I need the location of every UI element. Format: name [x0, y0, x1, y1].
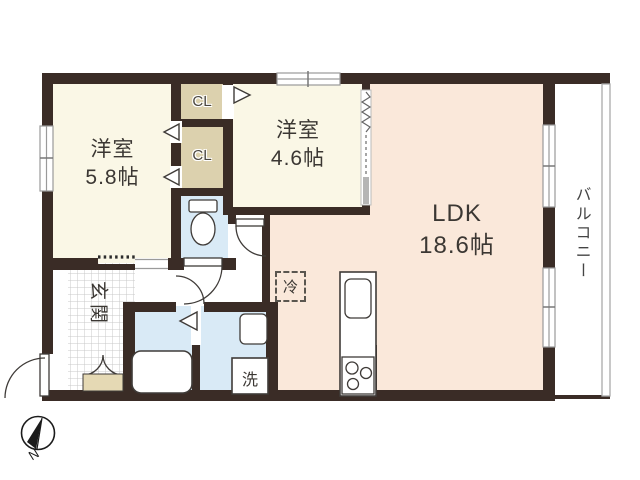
closet-upper-label: CL	[180, 92, 224, 112]
entrance-door	[40, 354, 49, 396]
bathtub	[132, 351, 192, 393]
burner-1	[346, 362, 358, 374]
refrigerator-space: 冷	[275, 271, 306, 302]
floor-plan: 洋室 5.8帖 洋室 4.6帖 LDK 18.6帖 CL CL 玄関 バルコニー…	[0, 0, 640, 480]
balcony-label: バルコニー	[570, 186, 592, 281]
western-room-1-label: 洋室 5.8帖	[55, 136, 170, 193]
entrance-label: 玄関	[85, 281, 111, 327]
floor-plan-canvas	[0, 0, 640, 480]
washbasin	[240, 314, 267, 344]
burner-2	[361, 368, 372, 379]
ldk-door	[236, 219, 264, 226]
toilet-bowl	[191, 213, 215, 245]
kitchen-sink	[345, 279, 371, 318]
compass	[22, 417, 55, 450]
toilet-door	[184, 258, 222, 266]
ldk-label: LDK 18.6帖	[387, 198, 527, 263]
closet-lower-label: CL	[180, 146, 224, 166]
burner-3	[348, 379, 359, 390]
toilet-tank	[189, 200, 217, 212]
balcony-railing	[602, 84, 610, 396]
shoe-cabinet	[83, 374, 123, 391]
accordion-door	[361, 90, 371, 205]
washing-machine-label: 洗	[236, 366, 264, 390]
western-room-2-label: 洋室 4.6帖	[238, 117, 358, 174]
